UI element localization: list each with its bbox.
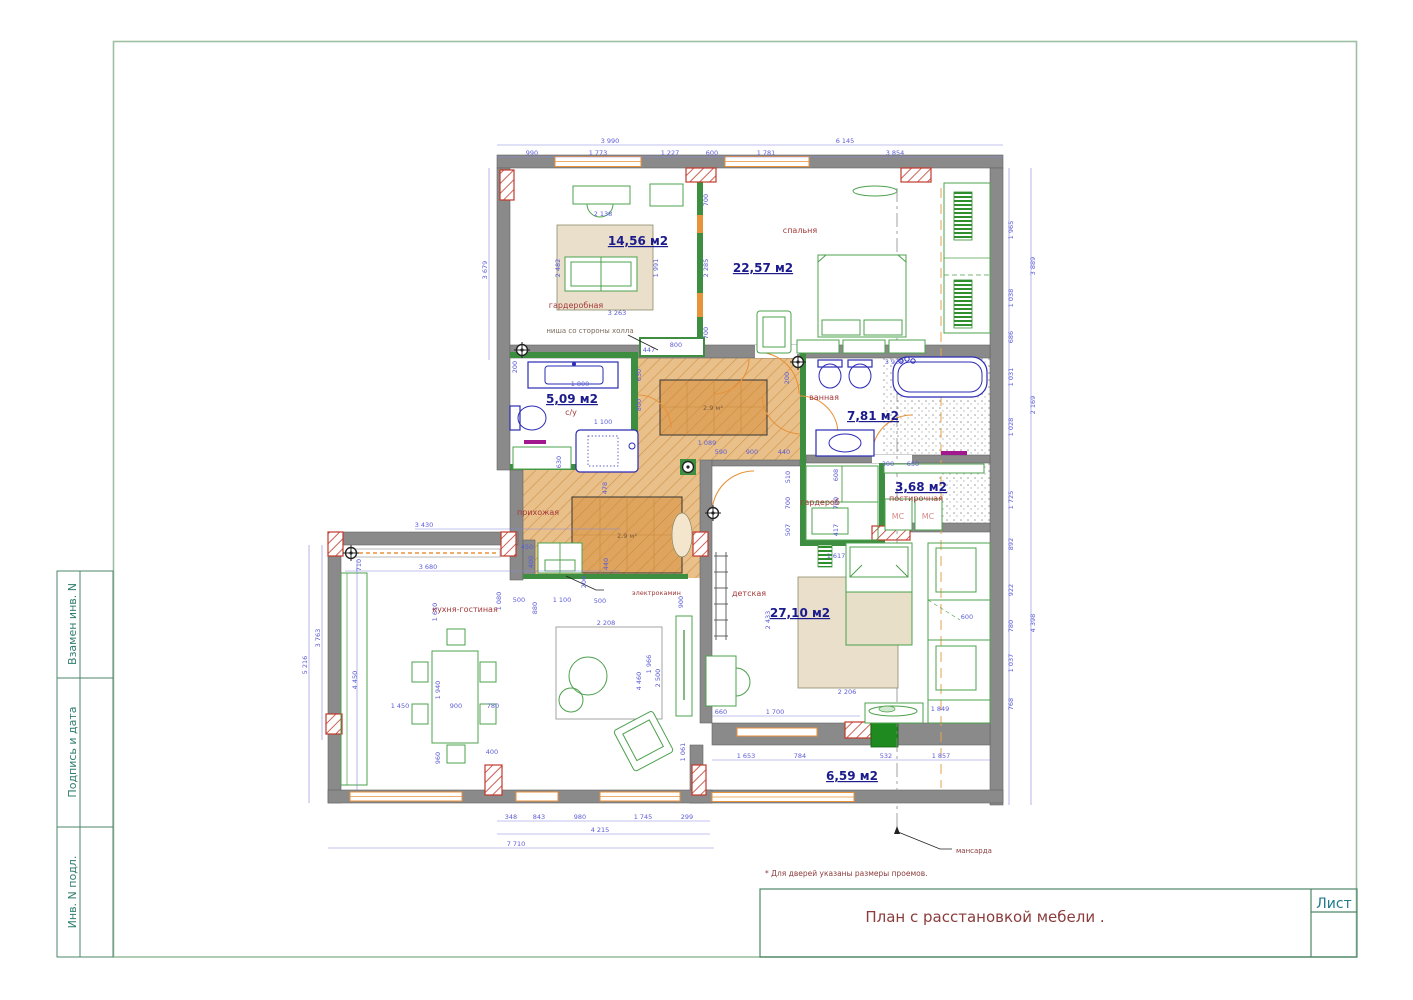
dim: 1 965 bbox=[1007, 221, 1015, 240]
room-name-kids: детская bbox=[732, 589, 766, 598]
dim: 880 bbox=[531, 602, 539, 614]
chair bbox=[447, 629, 465, 645]
dim: 1 617 bbox=[827, 552, 846, 560]
dim: 1 745 bbox=[634, 813, 653, 821]
tv-bedroom bbox=[853, 186, 897, 196]
room-name-wardrobe: гардеробная bbox=[549, 301, 604, 310]
room-area-bedroom: 22,57 м2 bbox=[733, 261, 793, 275]
rug1-area-label: 2.9 м² bbox=[703, 404, 723, 412]
dim: 3 854 bbox=[886, 149, 905, 157]
dim: 784 bbox=[794, 752, 806, 760]
bidet bbox=[849, 364, 871, 388]
dim: 892 bbox=[1007, 538, 1015, 550]
drawing-title: План с расстановкой мебели . bbox=[865, 908, 1104, 926]
dim: 1 061 bbox=[679, 743, 687, 762]
dim: 1 966 bbox=[645, 655, 653, 674]
stamp-label-inv: Инв. N подл. bbox=[66, 856, 79, 929]
dim: 3 430 bbox=[415, 521, 434, 529]
dim: 500 bbox=[513, 596, 525, 604]
kids-desk bbox=[706, 656, 736, 706]
room-name-su: с/у bbox=[565, 408, 577, 417]
room-name-laundry: постирочная bbox=[889, 494, 943, 503]
furniture-su bbox=[510, 362, 638, 472]
room-area-su: 5,09 м2 bbox=[546, 392, 598, 406]
dim: 686 bbox=[1007, 331, 1015, 343]
toilet-su bbox=[518, 406, 546, 430]
dim: 1 089 bbox=[698, 439, 717, 447]
dim: 608 bbox=[832, 469, 840, 481]
dim: 400 bbox=[527, 556, 535, 568]
dim: 4 398 bbox=[1029, 614, 1037, 633]
dim: 600 bbox=[961, 613, 973, 621]
chair bbox=[412, 704, 428, 724]
dim: 4 460 bbox=[635, 672, 643, 691]
dim: 3 680 bbox=[419, 563, 438, 571]
fireplace-label: электрокамин bbox=[632, 589, 681, 597]
stamp-label-vzamen: Взамен инв. N bbox=[66, 583, 79, 665]
dim: 1 100 bbox=[553, 596, 572, 604]
room-area-kids: 27,10 м2 bbox=[770, 606, 830, 620]
dim: 1 700 bbox=[766, 708, 785, 716]
sliding-door-1 bbox=[697, 215, 703, 233]
dim: 1 028 bbox=[1007, 418, 1015, 437]
dim: 440 bbox=[602, 558, 610, 570]
dim: 348 bbox=[505, 813, 517, 821]
room-name-closet: гардероб bbox=[800, 498, 840, 507]
dim: 590 bbox=[715, 448, 727, 456]
room-area-terrace: 6,59 м2 bbox=[826, 769, 878, 783]
frame-border bbox=[114, 42, 1357, 958]
dim: 1 031 bbox=[1007, 368, 1015, 387]
dim: 1 100 bbox=[594, 418, 613, 426]
dim: 2 500 bbox=[654, 669, 662, 688]
dim: 900 bbox=[450, 702, 462, 710]
dim: 700 bbox=[784, 497, 792, 509]
dim: 417 bbox=[832, 524, 840, 536]
dim: 700 bbox=[702, 327, 710, 339]
doors-note: * Для дверей указаны размеры проемов. bbox=[765, 869, 928, 878]
dim: 3 263 bbox=[608, 309, 627, 317]
radiator-ladder bbox=[714, 552, 728, 640]
dim: 3 763 bbox=[314, 629, 322, 648]
stamp-label-podpis: Подпись и дата bbox=[66, 706, 79, 797]
room-name-hall: прихожая bbox=[517, 508, 559, 517]
dim: 500 bbox=[594, 597, 606, 605]
dim: 450 bbox=[521, 543, 533, 551]
dim: 3 990 bbox=[601, 137, 620, 145]
dim: 990 bbox=[526, 149, 538, 157]
chair bbox=[480, 662, 496, 682]
furniture-kids bbox=[706, 543, 990, 723]
kids-wardrobe bbox=[928, 543, 990, 723]
dim: 200 bbox=[580, 576, 588, 588]
toilet-bath bbox=[819, 364, 841, 388]
dim: 700 bbox=[702, 194, 710, 206]
terrace-door bbox=[871, 723, 898, 747]
dim: 478 bbox=[601, 482, 609, 494]
dim: 1 773 bbox=[589, 149, 608, 157]
room-area-wardrobe: 14,56 м2 bbox=[608, 234, 668, 248]
dim: 660 bbox=[715, 708, 727, 716]
dim: 800 bbox=[635, 399, 643, 411]
washer-label-2: МС bbox=[922, 512, 935, 521]
dim: 1 800 bbox=[571, 380, 590, 388]
dim: 600 bbox=[706, 149, 718, 157]
armchair-living bbox=[613, 710, 673, 771]
rug-edge-detail bbox=[672, 513, 692, 557]
chair bbox=[412, 662, 428, 682]
dim: 532 bbox=[880, 752, 892, 760]
dim: 2 285 bbox=[702, 259, 710, 278]
room-area-laundry: 3,68 м2 bbox=[895, 480, 947, 494]
dim: 510 bbox=[784, 471, 792, 483]
dim: 2 482 bbox=[554, 259, 562, 278]
dim: 200 bbox=[783, 372, 791, 384]
dim: 630 bbox=[635, 369, 643, 381]
towel-rail-bath bbox=[941, 451, 967, 455]
chair bbox=[447, 745, 465, 763]
towel-rail-su bbox=[524, 440, 546, 444]
dim: 1 781 bbox=[757, 149, 776, 157]
dim: 447 bbox=[643, 346, 655, 354]
dim: 1 940 bbox=[434, 681, 442, 700]
dim: 800 bbox=[670, 341, 682, 349]
dim: 440 bbox=[778, 448, 790, 456]
dim: 3 889 bbox=[1029, 257, 1037, 276]
dim: 780 bbox=[1007, 620, 1015, 632]
dim: 5 216 bbox=[301, 656, 309, 675]
dim: 900 bbox=[677, 596, 685, 608]
hanger-rail-1 bbox=[954, 192, 972, 240]
dim: 768 bbox=[1007, 698, 1015, 710]
hanger-rail-2 bbox=[954, 280, 972, 328]
dim: 630 bbox=[555, 456, 563, 468]
dim: 1 849 bbox=[931, 705, 950, 713]
dim: 780 bbox=[487, 702, 499, 710]
dim: 300 bbox=[882, 460, 894, 468]
attic-label: мансарда bbox=[956, 847, 992, 855]
dim: 1 450 bbox=[391, 702, 410, 710]
rug2-area-label: 2.9 м² bbox=[617, 532, 637, 540]
room-name-kitchen: кухня-гостиная bbox=[432, 605, 498, 614]
dim: 1 037 bbox=[1007, 654, 1015, 673]
dim: 900 bbox=[746, 448, 758, 456]
room-area-bath: 7,81 м2 bbox=[847, 409, 899, 423]
dim: 2 206 bbox=[838, 688, 857, 696]
dim: 3 679 bbox=[481, 261, 489, 280]
dim: 922 bbox=[1007, 584, 1015, 596]
dim: 299 bbox=[681, 813, 693, 821]
dim: 4 450 bbox=[351, 671, 359, 690]
dim: 650 bbox=[907, 460, 919, 468]
dim: 200 bbox=[511, 361, 519, 373]
attic-leader bbox=[898, 832, 952, 849]
dim: 1 038 bbox=[1007, 289, 1015, 308]
dim: 960 bbox=[434, 752, 442, 764]
dim: 710 bbox=[355, 559, 363, 571]
dim: 1 725 bbox=[1007, 491, 1015, 510]
dim: 507 bbox=[784, 524, 792, 536]
floor-plan-sheet: Взамен инв. N Подпись и дата Инв. N подл… bbox=[0, 0, 1413, 1000]
dim: 1 991 bbox=[652, 259, 660, 278]
washer-label-1: МС bbox=[892, 512, 905, 521]
dim: 2 208 bbox=[597, 619, 616, 627]
room-name-bath: ванная bbox=[809, 393, 839, 402]
dim: 843 bbox=[533, 813, 545, 821]
dim: 6 145 bbox=[836, 137, 855, 145]
dim: 980 bbox=[574, 813, 586, 821]
niche-label: ниша со стороны холла bbox=[546, 327, 633, 335]
dim: 1 653 bbox=[737, 752, 756, 760]
dim: 2 138 bbox=[594, 210, 613, 218]
sheet-label: Лист bbox=[1316, 896, 1351, 912]
dim: 3 928 bbox=[885, 358, 904, 366]
dim: 1 227 bbox=[661, 149, 680, 157]
dim: 4 215 bbox=[591, 826, 610, 834]
bathtub bbox=[893, 357, 987, 397]
room-name-bedroom: спальня bbox=[783, 226, 818, 235]
title-block: Лист План с расстановкой мебели . bbox=[760, 889, 1357, 957]
dim: 2 169 bbox=[1029, 396, 1037, 415]
dim: 1 857 bbox=[932, 752, 951, 760]
sliding-door-2 bbox=[697, 293, 703, 317]
kids-chair bbox=[736, 668, 750, 696]
dim: 400 bbox=[486, 748, 498, 756]
dim: 7 710 bbox=[507, 840, 526, 848]
